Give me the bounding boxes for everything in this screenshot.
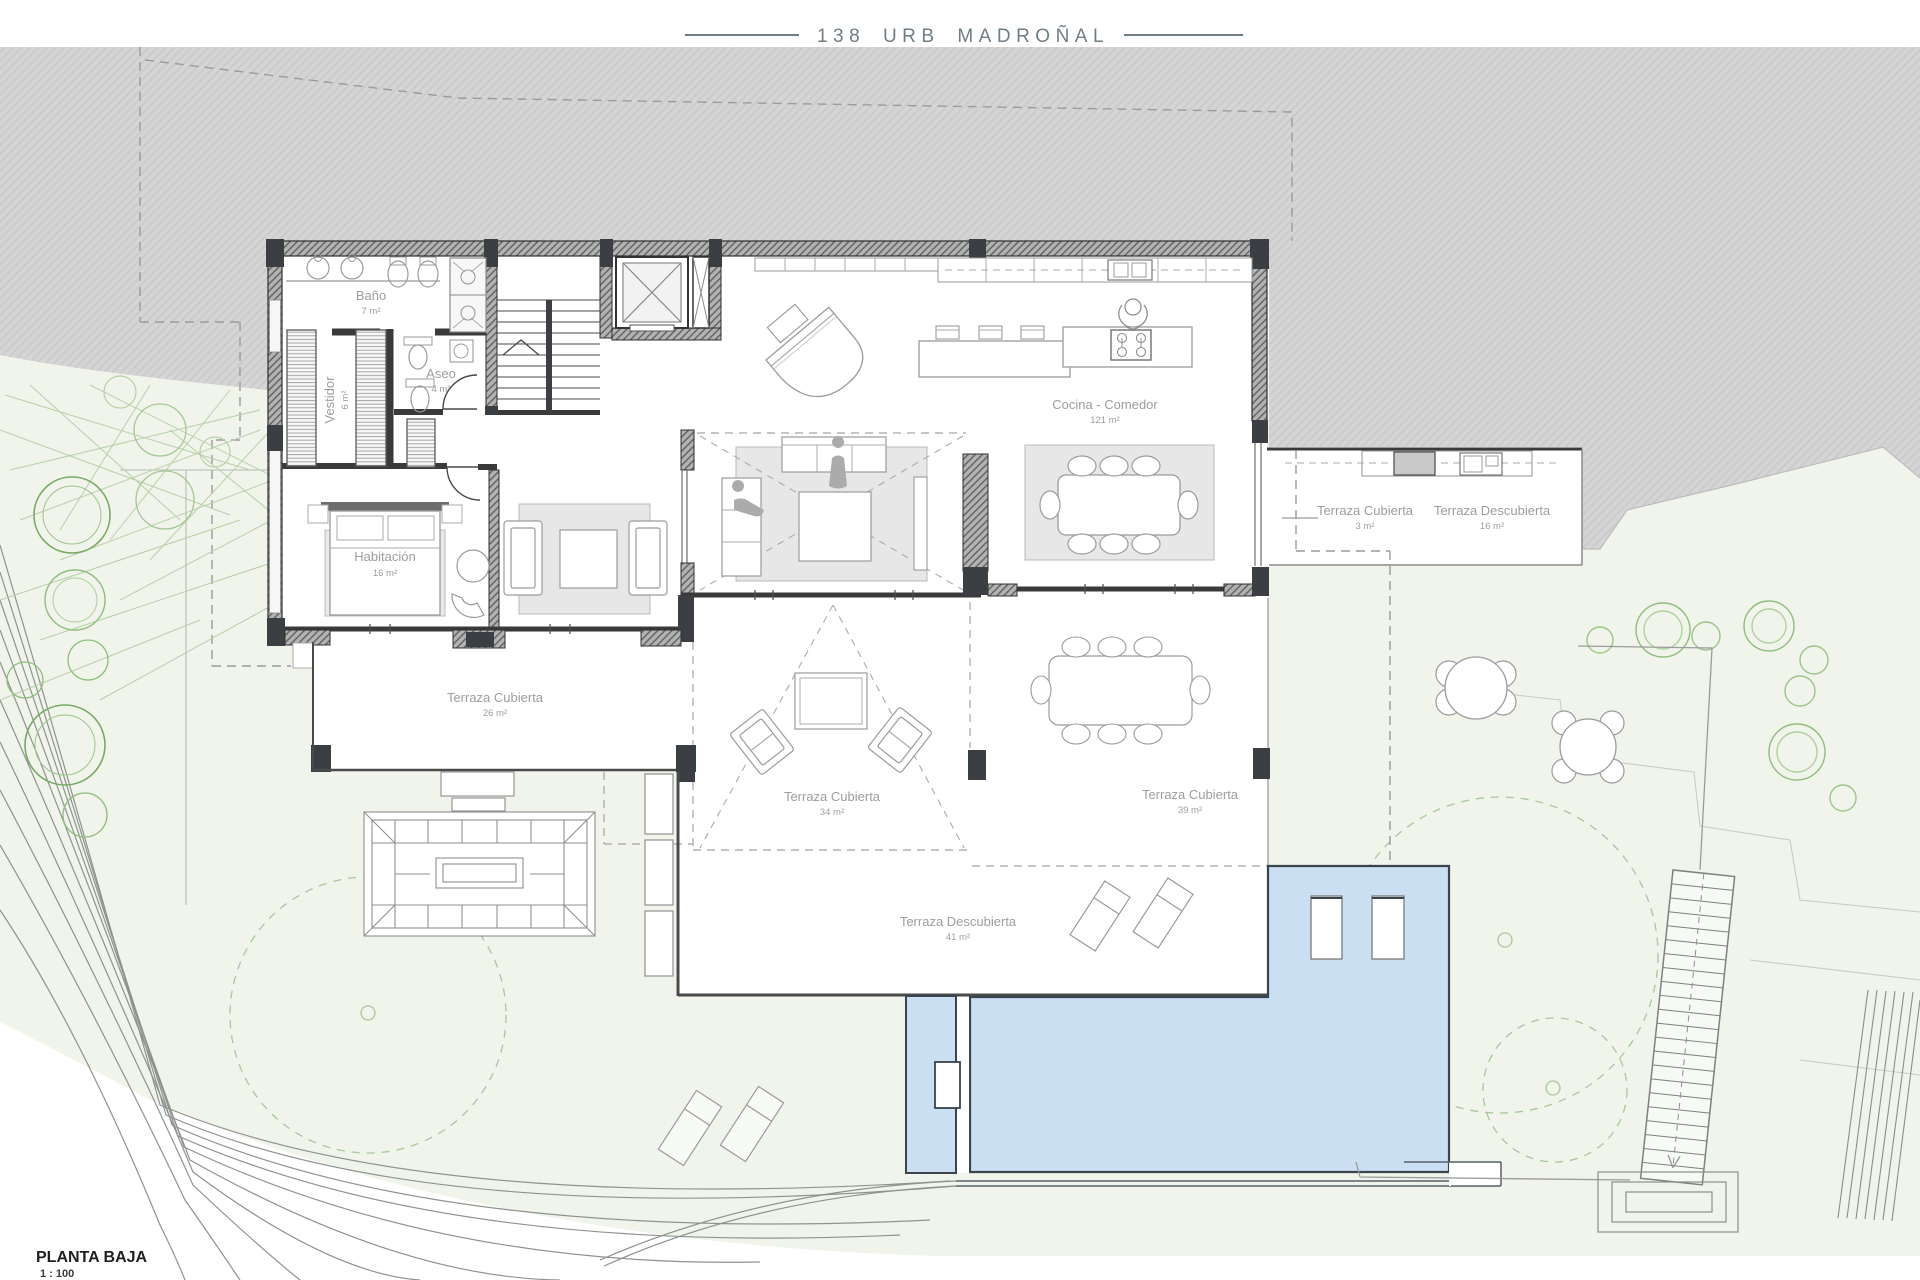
svg-text:4 m²: 4 m² — [432, 384, 451, 395]
svg-text:Aseo: Aseo — [426, 366, 456, 381]
svg-text:41 m²: 41 m² — [946, 932, 970, 943]
svg-text:121 m²: 121 m² — [1090, 415, 1120, 426]
svg-text:16 m²: 16 m² — [373, 568, 397, 579]
svg-text:7 m²: 7 m² — [362, 306, 381, 317]
svg-text:Terraza Cubierta: Terraza Cubierta — [1317, 503, 1414, 518]
svg-text:26 m²: 26 m² — [483, 708, 507, 719]
svg-text:34 m²: 34 m² — [820, 807, 844, 818]
svg-text:1 : 100: 1 : 100 — [40, 1268, 74, 1280]
svg-text:Terraza Cubierta: Terraza Cubierta — [784, 789, 881, 804]
svg-text:16 m²: 16 m² — [1480, 521, 1504, 532]
svg-text:39 m²: 39 m² — [1178, 805, 1202, 816]
svg-text:Vestidor: Vestidor — [322, 376, 337, 424]
svg-text:138 URB MADROÑAL: 138 URB MADROÑAL — [817, 25, 1109, 47]
svg-text:Habitación: Habitación — [354, 549, 415, 564]
svg-text:PLANTA BAJA: PLANTA BAJA — [36, 1249, 148, 1266]
svg-text:Terraza Cubierta: Terraza Cubierta — [447, 690, 544, 705]
svg-text:Terraza Descubierta: Terraza Descubierta — [900, 914, 1017, 929]
svg-text:Terraza Cubierta: Terraza Cubierta — [1142, 787, 1239, 802]
svg-text:Baño: Baño — [356, 288, 386, 303]
svg-text:6 m²: 6 m² — [340, 391, 351, 410]
svg-text:Terraza Descubierta: Terraza Descubierta — [1434, 503, 1551, 518]
svg-text:Cocina - Comedor: Cocina - Comedor — [1052, 397, 1158, 412]
svg-text:3 m²: 3 m² — [1356, 521, 1375, 532]
